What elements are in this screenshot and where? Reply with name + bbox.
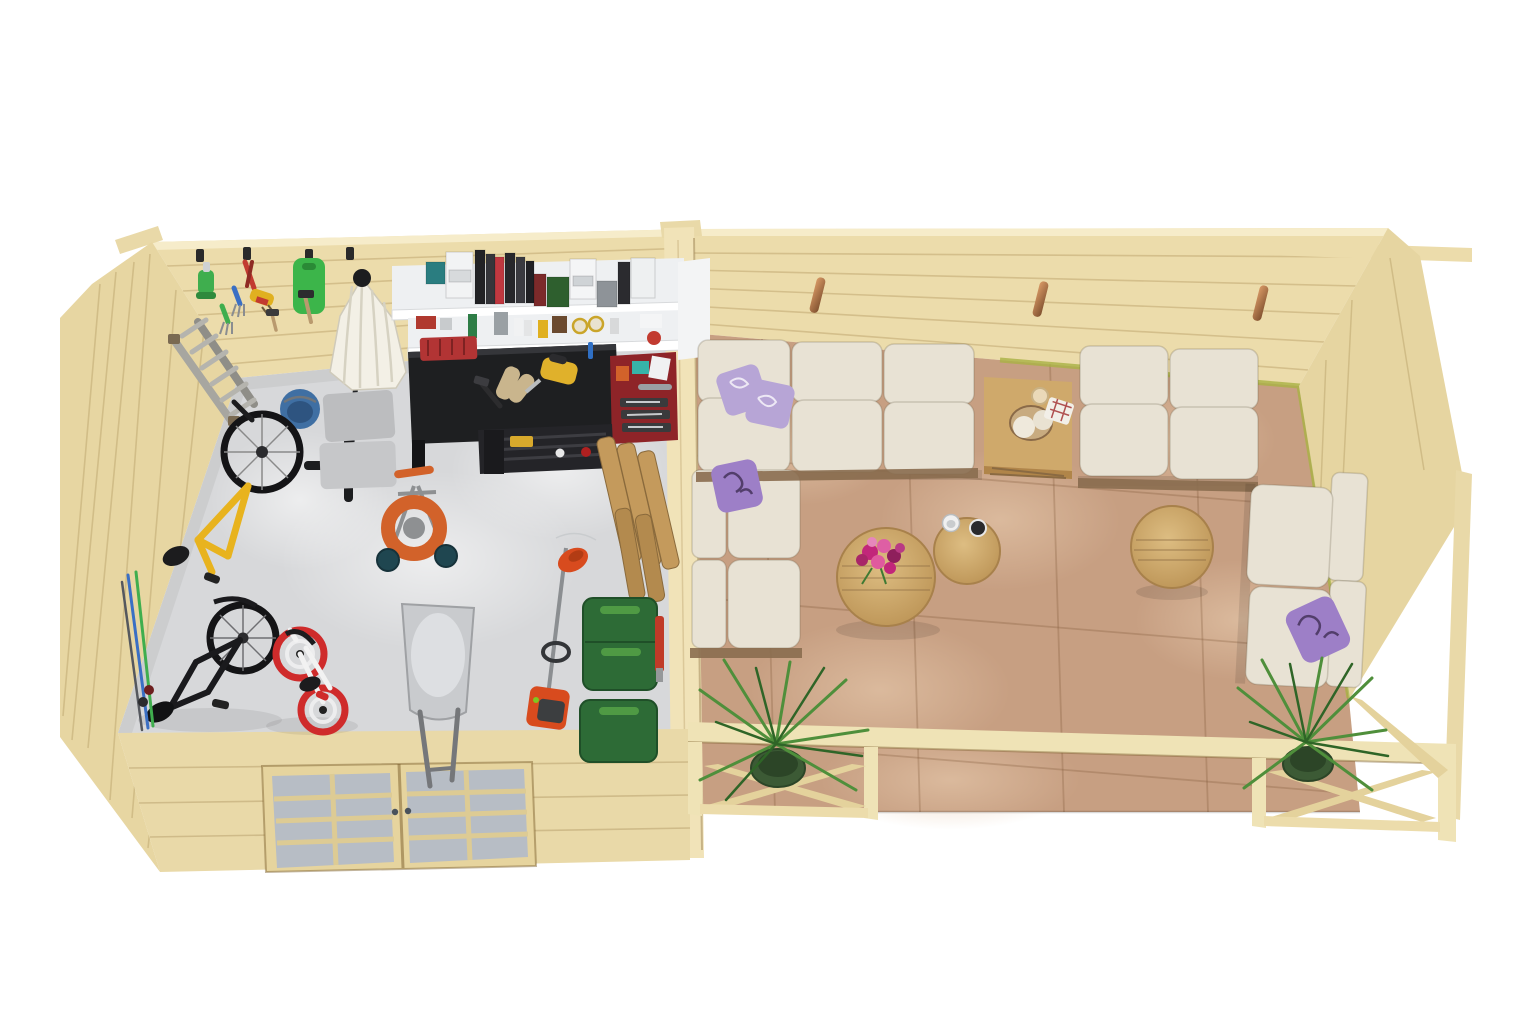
wheelie-bins xyxy=(580,598,664,762)
door-handle-2 xyxy=(405,808,411,814)
hedge-trimmer-leaning xyxy=(655,616,664,672)
cabinet-item-teal xyxy=(632,361,649,374)
tool-cart xyxy=(478,424,614,474)
parasol-cap xyxy=(353,269,371,287)
door-handle xyxy=(392,809,398,815)
red-crate xyxy=(420,336,478,361)
marker-pen xyxy=(588,342,593,359)
cabinet-paper xyxy=(648,356,671,381)
cabinet-item-orange xyxy=(616,366,629,381)
table-mug xyxy=(1032,388,1048,404)
sofa-right-side xyxy=(1235,468,1372,690)
cart-sticker-yellow xyxy=(510,436,533,447)
scene-svg xyxy=(0,0,1536,1025)
double-door xyxy=(262,762,536,872)
tool-cabinet xyxy=(610,352,678,444)
square-side-table xyxy=(984,377,1075,479)
railing-post xyxy=(1252,758,1266,828)
corner-brace xyxy=(1350,696,1448,778)
cabin-render xyxy=(0,0,1536,1025)
floral-pillow-arm xyxy=(710,458,765,515)
